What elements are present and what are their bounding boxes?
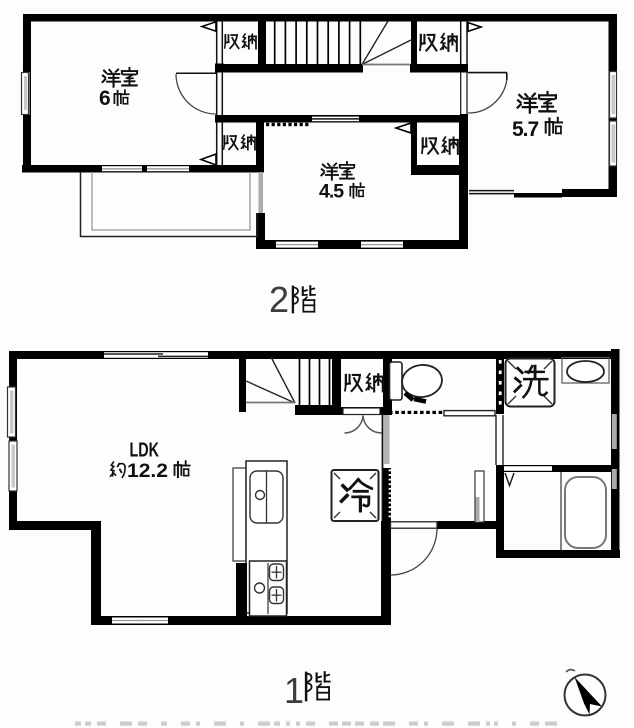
svg-text:5.7: 5.7 bbox=[512, 118, 539, 141]
svg-text:2: 2 bbox=[269, 279, 289, 320]
svg-text:6: 6 bbox=[99, 87, 111, 110]
svg-text:1: 1 bbox=[284, 670, 304, 711]
svg-text:4.5: 4.5 bbox=[319, 181, 344, 203]
svg-text:12.2: 12.2 bbox=[127, 461, 168, 482]
svg-text:LDK: LDK bbox=[130, 440, 160, 462]
